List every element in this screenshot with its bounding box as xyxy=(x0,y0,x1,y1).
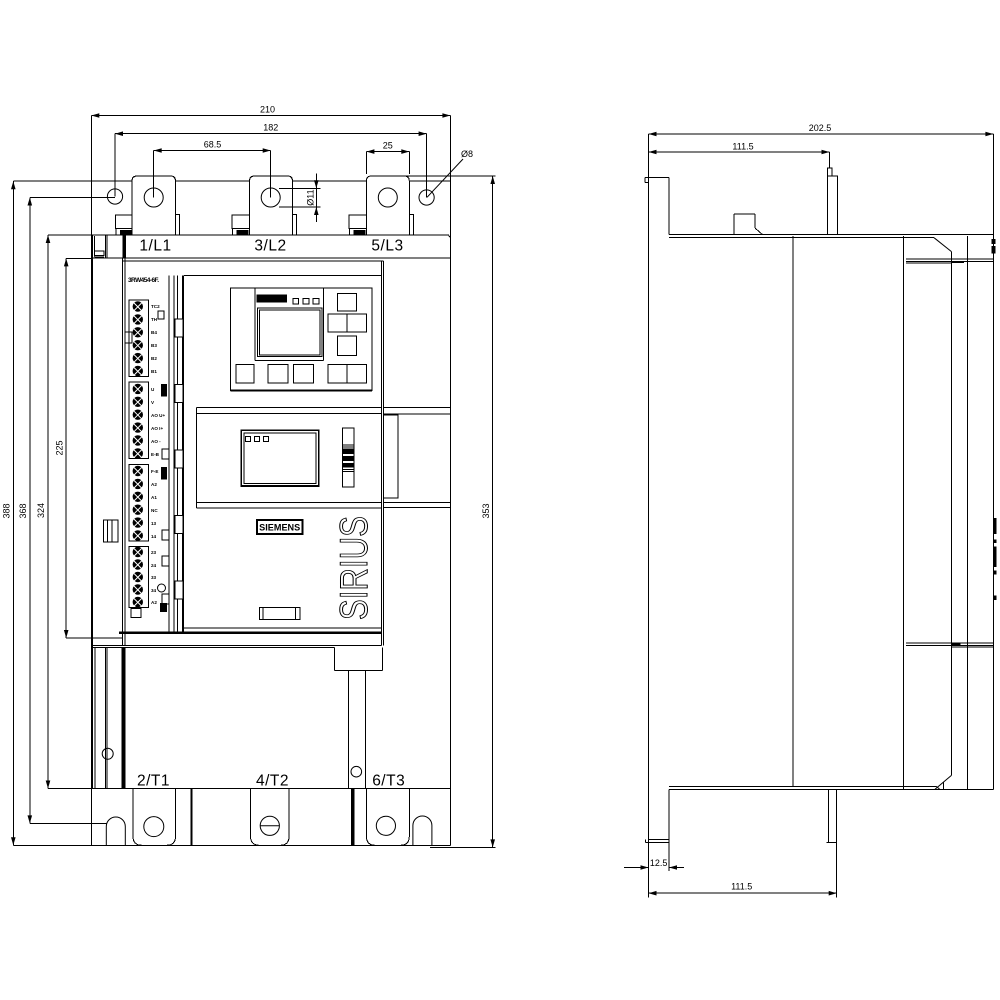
svg-text:A2: A2 xyxy=(151,482,157,487)
svg-text:388: 388 xyxy=(2,503,12,518)
svg-text:25: 25 xyxy=(383,141,393,151)
svg-text:NC: NC xyxy=(151,508,158,513)
svg-text:23: 23 xyxy=(151,550,157,555)
svg-text:368: 368 xyxy=(18,503,28,518)
svg-text:2/T1: 2/T1 xyxy=(137,773,170,790)
svg-text:12.5: 12.5 xyxy=(650,858,668,868)
svg-text:A1: A1 xyxy=(151,495,157,500)
svg-text:68.5: 68.5 xyxy=(204,140,222,150)
svg-text:Ø11: Ø11 xyxy=(306,189,316,205)
svg-text:111.5: 111.5 xyxy=(731,882,752,892)
svg-text:1/L1: 1/L1 xyxy=(139,238,171,255)
svg-text:111.5: 111.5 xyxy=(732,142,753,152)
svg-text:AO -: AO - xyxy=(151,439,161,444)
svg-text:210: 210 xyxy=(260,105,275,115)
svg-text:AO I+: AO I+ xyxy=(151,426,163,431)
svg-text:A2: A2 xyxy=(151,600,157,605)
svg-text:225: 225 xyxy=(54,440,64,455)
svg-text:SIEMENS: SIEMENS xyxy=(258,297,285,303)
svg-text:6/T3: 6/T3 xyxy=(372,773,405,790)
svg-text:24: 24 xyxy=(151,563,157,568)
svg-text:SIEMENS: SIEMENS xyxy=(259,523,300,533)
svg-text:B2: B2 xyxy=(151,356,157,361)
svg-text:AO U+: AO U+ xyxy=(151,413,165,418)
svg-text:353: 353 xyxy=(481,503,491,518)
svg-text:14: 14 xyxy=(151,534,157,539)
svg-text:F-E: F-E xyxy=(151,469,158,474)
svg-text:B3: B3 xyxy=(151,343,157,348)
svg-text:SIRIUS: SIRIUS xyxy=(331,516,375,620)
svg-text:202.5: 202.5 xyxy=(809,123,832,133)
svg-text:4/T2: 4/T2 xyxy=(256,773,289,790)
svg-text:B4: B4 xyxy=(151,330,157,335)
svg-text:13: 13 xyxy=(151,521,157,526)
svg-text:33: 33 xyxy=(151,575,157,580)
svg-text:B1: B1 xyxy=(151,369,157,374)
svg-text:TC2: TC2 xyxy=(151,304,160,309)
svg-text:TH: TH xyxy=(151,317,158,322)
svg-text:Ø8: Ø8 xyxy=(461,149,473,159)
svg-text:3/L2: 3/L2 xyxy=(254,238,286,255)
svg-text:34: 34 xyxy=(151,588,157,593)
svg-text:182: 182 xyxy=(263,123,278,133)
svg-text:324: 324 xyxy=(36,503,46,518)
svg-text:5/L3: 5/L3 xyxy=(371,238,403,255)
svg-text:E-B: E-B xyxy=(151,452,160,457)
svg-text:3RW454-6F.: 3RW454-6F. xyxy=(128,277,159,284)
